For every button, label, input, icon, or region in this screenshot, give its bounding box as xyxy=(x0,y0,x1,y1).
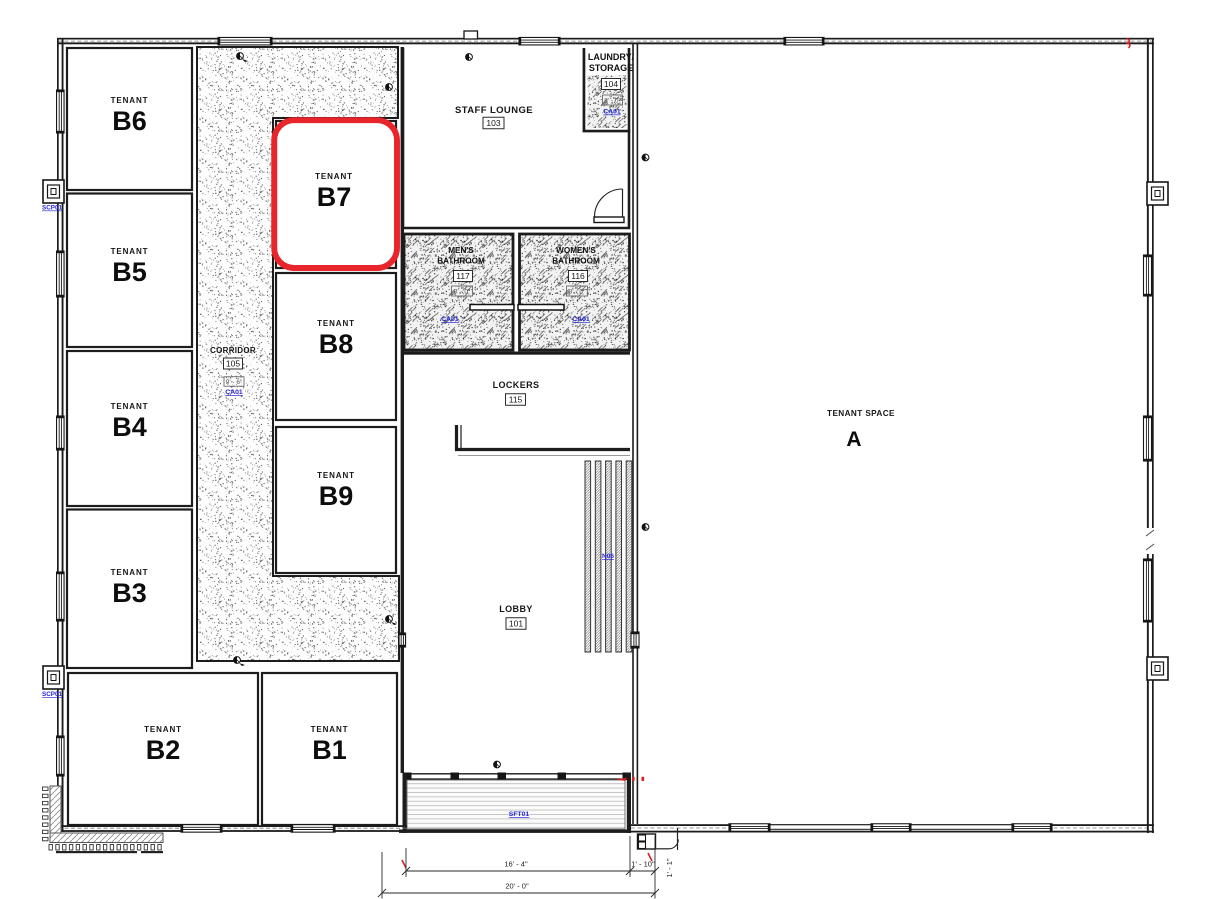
svg-text:SCP01: SCP01 xyxy=(42,691,62,698)
svg-text:CA01: CA01 xyxy=(603,109,621,116)
svg-text:STAFF LOUNGE: STAFF LOUNGE xyxy=(455,105,533,116)
svg-text:101: 101 xyxy=(509,619,523,629)
svg-text:TENANT: TENANT xyxy=(315,172,353,181)
svg-text:TENANT: TENANT xyxy=(111,402,149,411)
svg-text:TENANT: TENANT xyxy=(111,568,149,577)
svg-text:LAUNDRY/: LAUNDRY/ xyxy=(588,52,635,62)
svg-text:B9: B9 xyxy=(319,481,354,511)
svg-text:CA01: CA01 xyxy=(225,389,243,396)
svg-text:115: 115 xyxy=(509,395,523,405)
svg-text:CA01: CA01 xyxy=(572,316,590,323)
svg-text:B7: B7 xyxy=(317,182,352,212)
svg-text:LOCKERS: LOCKERS xyxy=(493,380,540,390)
svg-text:CORRIDOR: CORRIDOR xyxy=(210,346,256,355)
svg-text:B2: B2 xyxy=(146,735,181,765)
svg-text:BATHROOM: BATHROOM xyxy=(437,257,485,266)
svg-text:8' - 0": 8' - 0" xyxy=(604,98,621,105)
svg-text:1' - 10": 1' - 10" xyxy=(631,860,655,869)
svg-text:TENANT: TENANT xyxy=(317,319,355,328)
svg-text:116: 116 xyxy=(571,271,585,281)
svg-text:105: 105 xyxy=(226,359,240,369)
svg-text:TENANT: TENANT xyxy=(111,247,149,256)
svg-text:103: 103 xyxy=(486,118,500,128)
svg-text:B4: B4 xyxy=(112,412,147,442)
svg-text:1' - 1": 1' - 1" xyxy=(665,858,674,877)
svg-text:B5: B5 xyxy=(112,257,147,287)
svg-text:9' - 6": 9' - 6" xyxy=(226,379,243,386)
svg-text:B8: B8 xyxy=(319,329,354,359)
svg-text:TENANT: TENANT xyxy=(111,96,149,105)
svg-text:B3: B3 xyxy=(112,578,147,608)
svg-text:BATHROOM: BATHROOM xyxy=(552,257,600,266)
svg-text:TENANT: TENANT xyxy=(317,471,355,480)
svg-text:8' - 0": 8' - 0" xyxy=(569,289,586,296)
svg-text:CA01: CA01 xyxy=(441,316,459,323)
svg-text:104: 104 xyxy=(604,79,618,89)
svg-text:B6: B6 xyxy=(112,106,147,136)
svg-text:SFT01: SFT01 xyxy=(509,811,530,818)
svg-text:WOMEN'S: WOMEN'S xyxy=(556,246,596,255)
svg-text:B1: B1 xyxy=(312,735,347,765)
svg-text:TENANT: TENANT xyxy=(144,725,182,734)
svg-text:MEN'S: MEN'S xyxy=(448,246,474,255)
svg-text:TENANT SPACE: TENANT SPACE xyxy=(827,409,895,418)
svg-text:STORAGE: STORAGE xyxy=(589,63,633,73)
svg-text:8' - 0": 8' - 0" xyxy=(454,289,471,296)
svg-text:N06: N06 xyxy=(602,553,614,560)
svg-text:117: 117 xyxy=(456,271,470,281)
svg-text:A: A xyxy=(846,428,861,451)
svg-text:TENANT: TENANT xyxy=(311,725,349,734)
svg-text:20' - 0": 20' - 0" xyxy=(505,882,529,891)
svg-text:SCP01: SCP01 xyxy=(42,205,62,212)
svg-text:16' - 4": 16' - 4" xyxy=(504,860,528,869)
svg-text:LOBBY: LOBBY xyxy=(499,604,533,614)
